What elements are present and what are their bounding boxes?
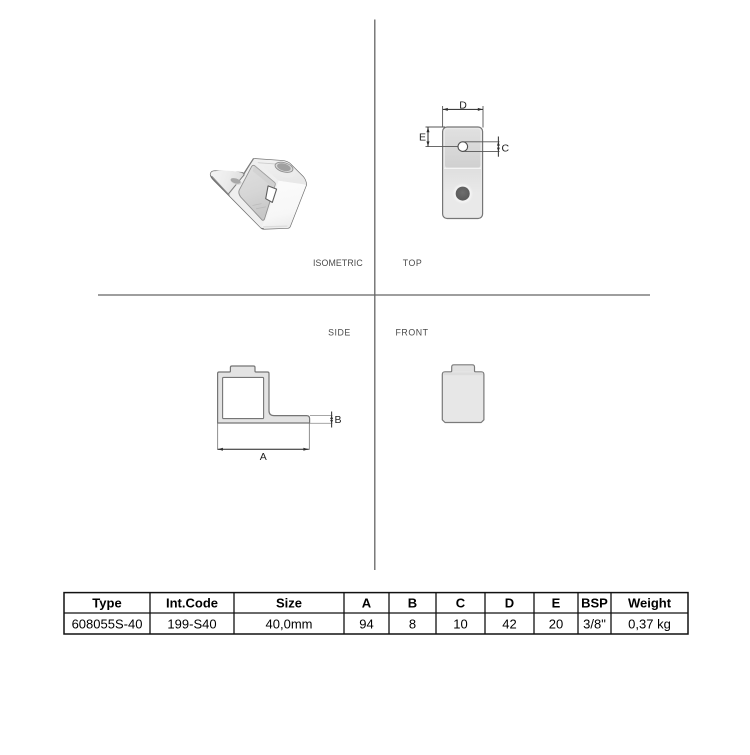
svg-text:E: E: [552, 595, 561, 610]
svg-text:C: C: [502, 142, 510, 154]
svg-text:0,37 kg: 0,37 kg: [628, 616, 671, 631]
svg-text:8: 8: [409, 616, 416, 631]
svg-text:B: B: [408, 595, 417, 610]
svg-text:Weight: Weight: [628, 595, 672, 610]
svg-text:E: E: [419, 132, 426, 144]
svg-text:20: 20: [549, 616, 563, 631]
svg-text:40,0mm: 40,0mm: [266, 616, 313, 631]
svg-text:608055S-40: 608055S-40: [72, 616, 143, 631]
svg-text:94: 94: [359, 616, 373, 631]
svg-text:FRONT: FRONT: [396, 328, 429, 338]
svg-text:A: A: [362, 595, 372, 610]
svg-text:ISOMETRIC: ISOMETRIC: [313, 258, 363, 268]
svg-text:10: 10: [453, 616, 467, 631]
svg-text:199-S40: 199-S40: [167, 616, 216, 631]
svg-text:Type: Type: [92, 595, 121, 610]
svg-text:A: A: [260, 451, 267, 463]
svg-text:TOP: TOP: [403, 258, 423, 268]
svg-text:D: D: [459, 99, 467, 111]
svg-text:SIDE: SIDE: [328, 328, 351, 338]
svg-text:C: C: [456, 595, 466, 610]
svg-text:D: D: [505, 595, 514, 610]
svg-text:B: B: [334, 414, 341, 426]
svg-text:BSP: BSP: [581, 595, 608, 610]
svg-text:42: 42: [502, 616, 516, 631]
svg-text:3/8": 3/8": [583, 616, 606, 631]
svg-text:Int.Code: Int.Code: [166, 595, 218, 610]
svg-text:Size: Size: [276, 595, 302, 610]
